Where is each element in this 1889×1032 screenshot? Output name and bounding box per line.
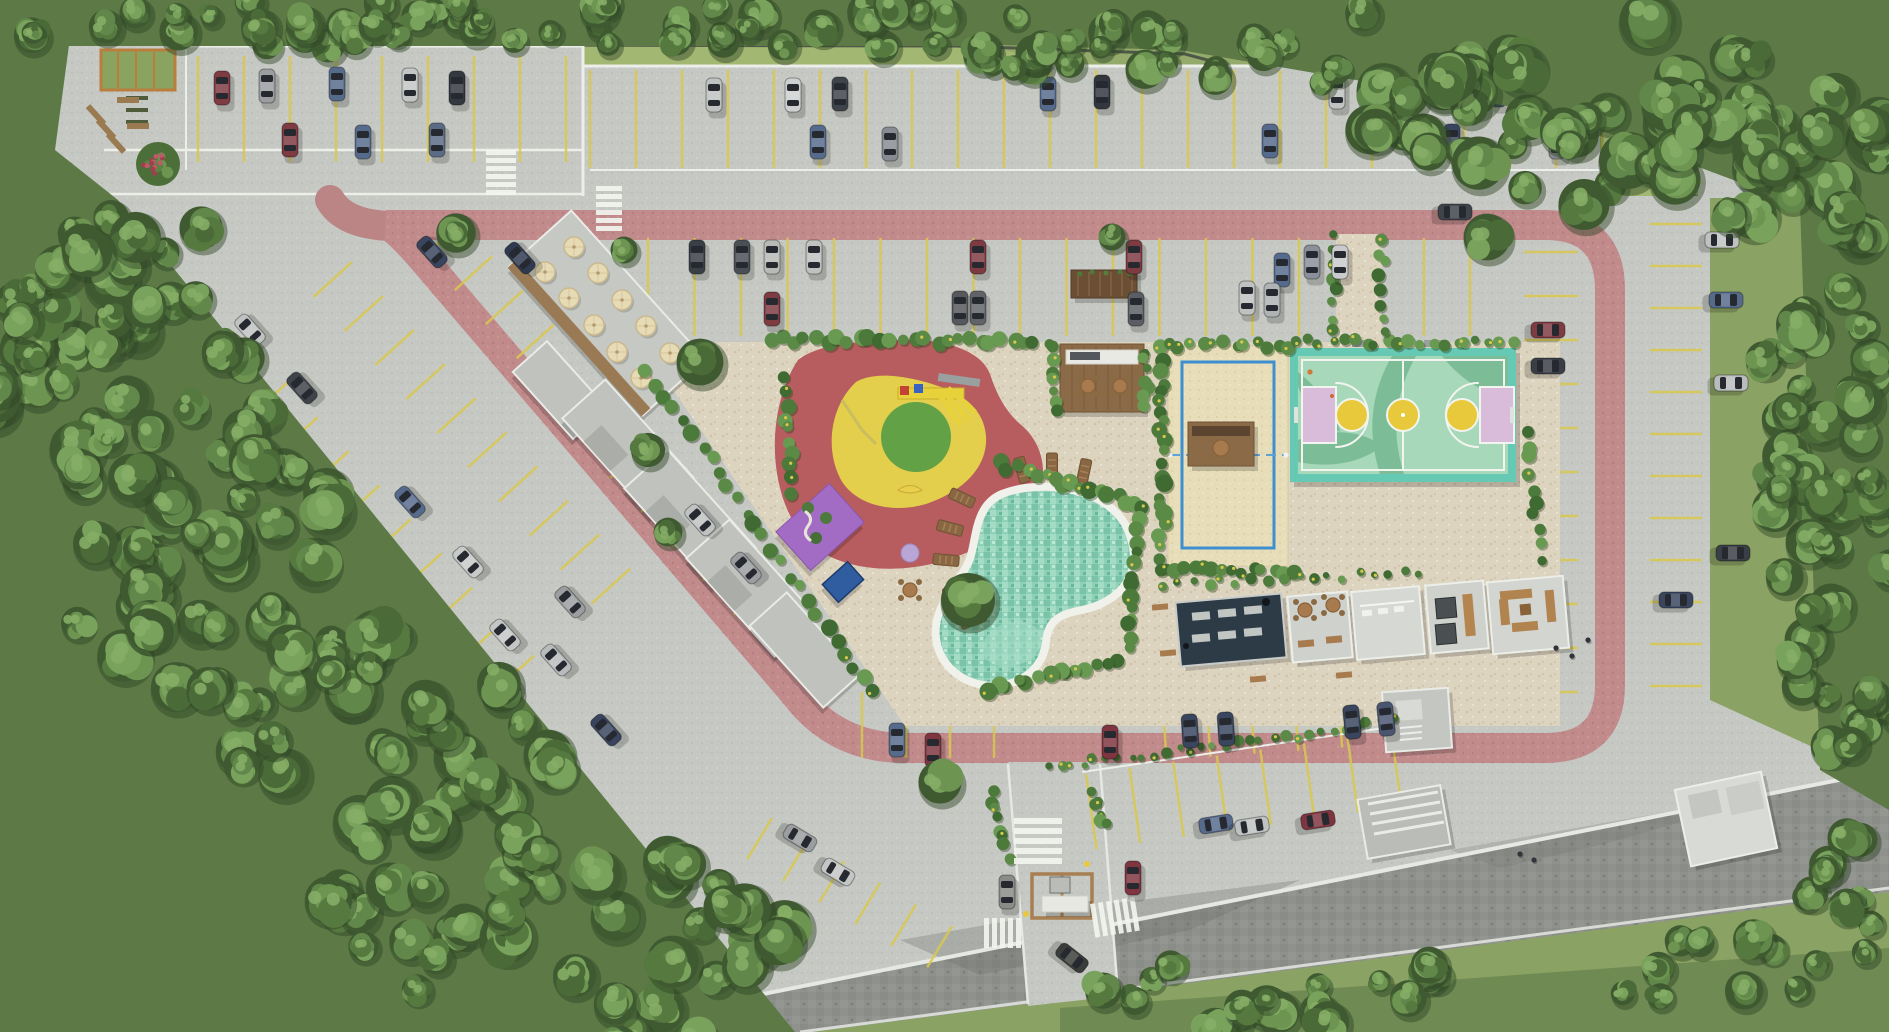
tree-highlight — [238, 415, 250, 427]
car-windshield — [1266, 289, 1278, 296]
car — [1262, 124, 1283, 165]
rect — [1378, 608, 1388, 615]
car — [429, 123, 450, 164]
car-rear-window — [1306, 267, 1318, 273]
tree-highlight — [487, 663, 499, 675]
tree-highlight — [201, 671, 213, 683]
hedge-flower — [784, 416, 787, 419]
hedge-bush — [898, 335, 908, 345]
gym-equip — [1218, 630, 1237, 640]
tree-highlight — [510, 826, 522, 838]
hedge-flower — [1175, 579, 1178, 582]
hedge-bush — [1046, 373, 1058, 385]
tree-highlight — [386, 744, 397, 755]
car — [810, 125, 831, 166]
tree-highlight — [713, 973, 723, 983]
car-windshield — [1306, 251, 1318, 258]
car-roof — [1241, 294, 1254, 303]
zebra-stripe — [596, 226, 622, 231]
chair — [1126, 375, 1132, 381]
gatehouse-canopy — [1042, 896, 1088, 912]
hedge-bush — [1098, 486, 1115, 503]
tree-highlight — [449, 785, 461, 797]
zebra-stripe — [992, 918, 997, 948]
tree-highlight — [316, 496, 330, 510]
hedge-flower — [785, 387, 788, 390]
car-windshield — [808, 246, 820, 253]
chair — [1339, 594, 1345, 600]
car-rear-window — [1711, 234, 1717, 246]
car-roof — [891, 736, 904, 745]
car — [764, 240, 785, 281]
hedge-bush — [1087, 787, 1097, 797]
car-roof — [954, 304, 967, 313]
car — [832, 77, 853, 118]
tree-highlight — [338, 11, 348, 21]
car-windshield — [1130, 298, 1142, 305]
table — [1113, 379, 1127, 393]
tree-highlight — [215, 533, 230, 548]
hedge-flower — [1089, 758, 1092, 761]
tree-highlight — [362, 17, 371, 26]
tree-highlight — [1561, 118, 1574, 131]
tree-highlight — [130, 541, 139, 550]
car-roof — [1306, 258, 1319, 267]
hedge-bush — [1177, 561, 1190, 574]
car-rear-window — [787, 100, 799, 106]
tree-highlight — [735, 958, 748, 971]
hedge-bush — [1279, 574, 1290, 585]
tree-highlight — [102, 435, 111, 444]
hedge-bush — [1245, 735, 1255, 745]
car-rear-window — [1104, 747, 1116, 753]
zebra-stripe — [596, 202, 622, 207]
tree-highlight — [1141, 22, 1151, 32]
rose — [151, 167, 156, 172]
bench — [127, 123, 149, 129]
hedge-bush — [1304, 730, 1314, 740]
car-rear-window — [404, 90, 416, 96]
hedge-bush — [1031, 469, 1045, 483]
hedge-bush — [1025, 336, 1038, 349]
car-roof — [1264, 137, 1277, 146]
hedge-flower — [1159, 585, 1162, 588]
tree-highlight — [418, 879, 428, 889]
hedge-flower — [1127, 598, 1130, 601]
hedge-bush — [1254, 736, 1261, 743]
car-roof — [691, 253, 704, 262]
tree-highlight — [477, 14, 483, 20]
car — [214, 71, 235, 112]
tree-highlight — [187, 288, 197, 298]
hedge-bush — [1528, 485, 1540, 497]
hedge-bush — [1161, 747, 1172, 758]
hedge-bush — [1415, 571, 1422, 578]
chair — [1108, 391, 1114, 397]
deck-grill — [1070, 352, 1100, 360]
tree-highlight — [72, 336, 85, 349]
tree-highlight — [1209, 66, 1218, 75]
hedge-bush — [866, 684, 880, 698]
hedge-bush — [1471, 336, 1479, 344]
car-windshield — [1219, 718, 1231, 726]
tree-highlight — [1545, 125, 1558, 138]
hedge-bush — [1521, 448, 1536, 463]
car-rear-window — [216, 93, 228, 99]
car — [689, 240, 710, 281]
car-windshield — [1680, 594, 1687, 606]
tree-highlight — [206, 346, 218, 358]
car — [806, 240, 827, 281]
hoop-left — [1294, 407, 1298, 423]
car — [882, 127, 903, 168]
rect — [1362, 610, 1372, 617]
hedge-bush — [1349, 333, 1361, 345]
tree-highlight — [181, 395, 190, 404]
car-roof — [1334, 258, 1347, 267]
car-windshield — [261, 75, 273, 82]
car-roof — [1543, 324, 1552, 337]
chair — [916, 579, 922, 585]
hedge-bush — [1032, 670, 1044, 682]
zebra-stripe — [596, 210, 622, 215]
car-windshield — [1459, 206, 1466, 218]
chair — [1321, 594, 1327, 600]
car-rear-window — [1130, 314, 1142, 320]
hedge-bush — [1208, 742, 1215, 749]
tree-highlight — [293, 676, 305, 688]
tree-highlight — [231, 426, 243, 438]
hedge-bush — [1216, 564, 1228, 576]
car — [329, 67, 350, 108]
zebra-stripe — [1000, 918, 1005, 948]
hedge-flower — [1256, 340, 1259, 343]
hedge-bush — [1143, 364, 1152, 373]
car-rear-window — [766, 262, 778, 268]
car — [1432, 204, 1473, 225]
tree-highlight — [456, 914, 468, 926]
zebra-stripe — [486, 182, 516, 187]
hedge-bush — [1522, 468, 1535, 481]
hedge-flower — [1378, 238, 1381, 241]
ball — [1330, 394, 1334, 398]
zebra-stripe — [1014, 828, 1062, 834]
hedge-bush — [1226, 565, 1237, 576]
hedge-bush — [1328, 316, 1337, 325]
hoop-right — [1510, 407, 1514, 423]
rose — [154, 154, 159, 159]
parasol-pole — [567, 296, 571, 300]
tree-highlight — [546, 760, 559, 773]
car — [282, 123, 303, 164]
tree-highlight — [506, 35, 513, 42]
hedge-flower — [1329, 329, 1332, 332]
tree-highlight — [668, 32, 677, 41]
tree-highlight — [1065, 35, 1072, 42]
hedge-flower — [1163, 435, 1166, 438]
tree-highlight — [496, 679, 508, 691]
hedge-bush — [714, 467, 726, 479]
car — [1710, 545, 1751, 566]
zebra-stripe — [1014, 858, 1062, 864]
car-windshield — [1379, 707, 1392, 715]
playground-turf-circle — [881, 402, 951, 472]
hedge-bush — [1045, 762, 1052, 769]
tree-highlight — [924, 774, 936, 786]
hedge-flower — [1333, 338, 1336, 341]
tree-highlight — [1170, 25, 1176, 31]
tree-highlight — [1034, 38, 1043, 47]
hedge-bush — [775, 555, 785, 565]
tree-highlight — [1372, 74, 1387, 89]
car-rear-window — [884, 149, 896, 155]
dot — [1183, 643, 1189, 649]
tree-highlight — [665, 950, 679, 964]
scene-root — [0, 0, 1889, 1032]
car — [1332, 245, 1353, 286]
zebra-stripe — [1016, 918, 1021, 948]
hedge-flower — [868, 692, 871, 695]
hedge-flower — [1201, 563, 1204, 566]
tree-highlight — [193, 603, 206, 616]
car-roof — [766, 305, 779, 314]
hedge-flower — [1177, 343, 1180, 346]
car-windshield — [1264, 130, 1276, 137]
dot — [1104, 271, 1109, 276]
car — [1525, 358, 1566, 379]
hedge-flower — [949, 338, 952, 341]
chair — [1293, 615, 1299, 621]
hedge-bush — [1323, 572, 1329, 578]
car — [1239, 281, 1260, 322]
tree-highlight — [358, 939, 366, 947]
hedge-flower — [1209, 341, 1212, 344]
hedge-bush — [1159, 445, 1169, 455]
car-rear-window — [261, 91, 273, 97]
gym-mat — [1175, 594, 1286, 667]
car-windshield — [1128, 246, 1140, 253]
car-rear-window — [331, 89, 343, 95]
hedge-bush — [1371, 268, 1385, 282]
tree-highlight — [916, 4, 924, 12]
car-windshield — [1127, 867, 1139, 874]
car-roof — [451, 84, 464, 93]
hedge-flower — [1167, 520, 1170, 523]
hedge-bush — [1120, 616, 1135, 631]
hedge-bush — [782, 456, 797, 471]
car-windshield — [331, 73, 343, 80]
car-rear-window — [1665, 594, 1671, 606]
dot — [1078, 272, 1083, 277]
hedge-flower — [1374, 574, 1377, 577]
car-roof — [972, 253, 985, 262]
car — [1703, 292, 1744, 313]
car — [259, 69, 280, 110]
tree-highlight — [308, 891, 321, 904]
car-roof — [736, 253, 749, 262]
car-rear-window — [1184, 736, 1196, 743]
car-windshield — [1276, 259, 1288, 266]
tree-highlight — [1254, 49, 1263, 58]
car — [1094, 75, 1115, 116]
hedge-bush — [1138, 352, 1149, 363]
zebra-stripe — [1014, 848, 1062, 854]
bench — [1326, 635, 1343, 643]
zebra-stripe — [1008, 918, 1013, 948]
tree-foliage — [32, 30, 40, 38]
car-windshield — [927, 739, 939, 746]
car-roof — [1726, 377, 1735, 390]
table — [1326, 598, 1340, 612]
car-windshield — [1345, 710, 1358, 718]
hedge-bush — [992, 331, 1007, 346]
car-roof — [1266, 296, 1279, 305]
car-rear-window — [812, 147, 824, 153]
garden-frame — [101, 50, 175, 90]
chair — [1228, 454, 1234, 460]
tree-highlight — [71, 460, 82, 471]
car — [889, 723, 910, 764]
car-rear-window — [708, 100, 720, 106]
chair — [1311, 615, 1317, 621]
tree-highlight — [1413, 145, 1424, 156]
person — [1585, 637, 1590, 642]
car — [355, 125, 376, 166]
chair — [1208, 436, 1214, 442]
lounger-slat — [952, 557, 953, 565]
tree-highlight — [79, 537, 91, 549]
tree-highlight — [206, 619, 216, 629]
tree-foliage — [779, 48, 789, 58]
hedge-flower — [1013, 340, 1016, 343]
hedge-flower — [1049, 675, 1052, 678]
car-roof — [766, 253, 779, 262]
car-windshield — [1241, 287, 1253, 294]
hedge-bush — [1216, 334, 1230, 348]
ft-circle-left — [1336, 399, 1368, 431]
tree-highlight — [238, 754, 248, 764]
tree-highlight — [132, 225, 146, 239]
hedge-bush — [1327, 324, 1339, 336]
key-right — [1480, 387, 1514, 443]
person — [1531, 857, 1536, 862]
car-roof — [216, 84, 229, 93]
hedge-bush — [1379, 314, 1387, 322]
hedge-bush — [678, 415, 689, 426]
hedge-flower — [1489, 341, 1492, 344]
tree-highlight — [270, 726, 280, 736]
hedge-bush — [718, 478, 732, 492]
rose — [149, 161, 154, 166]
tree-highlight — [375, 875, 388, 888]
tree-highlight — [864, 13, 872, 21]
hedge-bush — [992, 812, 1002, 822]
tree-foliage — [363, 651, 375, 663]
car-roof — [404, 81, 417, 90]
car-rear-window — [1264, 146, 1276, 152]
hedge-bush — [881, 333, 896, 348]
tree-highlight — [648, 851, 662, 865]
tree-highlight — [395, 928, 407, 940]
hedge-bush — [1415, 340, 1425, 350]
tree-highlight — [1010, 65, 1017, 72]
lounger-slat — [940, 555, 941, 563]
hedge-bush — [1245, 573, 1256, 584]
car-windshield — [357, 131, 369, 138]
car — [1102, 725, 1123, 766]
hedge-flower — [1130, 563, 1133, 566]
hedge-flower — [1086, 486, 1089, 489]
person — [1517, 851, 1522, 856]
hedge-bush — [1102, 818, 1112, 828]
bench — [117, 97, 139, 103]
table — [1298, 603, 1312, 617]
tree-highlight — [139, 619, 151, 631]
tree-highlight — [931, 38, 938, 45]
car — [1126, 240, 1147, 281]
hedge-bush — [1154, 553, 1166, 565]
hedge-flower — [1157, 399, 1160, 402]
gym-equip — [1244, 627, 1263, 637]
zebra-stripe — [486, 158, 516, 163]
tree-foliage — [132, 459, 153, 480]
hedge-bush — [942, 335, 954, 347]
tree-foliage — [1070, 59, 1079, 68]
tree-highlight — [587, 865, 601, 879]
chair — [898, 595, 904, 601]
hedge-bush — [998, 463, 1012, 477]
parasol-pole — [668, 351, 672, 355]
car-rear-window — [357, 147, 369, 153]
hedge-bush — [831, 634, 846, 649]
hedge-bush — [1317, 728, 1325, 736]
hedge-bush — [1014, 675, 1025, 686]
car-rear-window — [1537, 360, 1543, 372]
car-rear-window — [1331, 97, 1343, 103]
tree-highlight — [965, 583, 980, 598]
car-rear-window — [451, 93, 463, 99]
hedge-flower — [920, 336, 923, 339]
tree-highlight — [286, 463, 295, 472]
car-roof — [1128, 253, 1141, 262]
hedge-flower — [789, 462, 792, 465]
tree-highlight — [12, 312, 23, 323]
hedge-flower — [1527, 472, 1530, 475]
play-cube-blue — [914, 384, 923, 393]
tree-highlight — [175, 6, 181, 12]
car-windshield — [1096, 81, 1108, 88]
hedge-flower — [1274, 735, 1277, 738]
car-roof — [431, 136, 444, 145]
hedge-bush — [683, 424, 700, 441]
car — [1708, 375, 1749, 396]
hedge-bush — [1047, 353, 1061, 367]
tree-highlight — [134, 300, 146, 312]
hedge-flower — [1096, 801, 1099, 804]
car-rear-window — [1127, 883, 1139, 889]
table — [1213, 440, 1229, 456]
car-roof — [1543, 360, 1552, 373]
tree-highlight — [714, 30, 721, 37]
hedge-bush — [1536, 537, 1547, 548]
hedge-bush — [1280, 730, 1291, 741]
car — [1128, 292, 1149, 333]
zebra-stripe — [596, 194, 622, 199]
tree-highlight — [661, 531, 669, 539]
car — [1653, 592, 1694, 613]
hedge-bush — [1089, 798, 1101, 810]
car-windshield — [834, 83, 846, 90]
